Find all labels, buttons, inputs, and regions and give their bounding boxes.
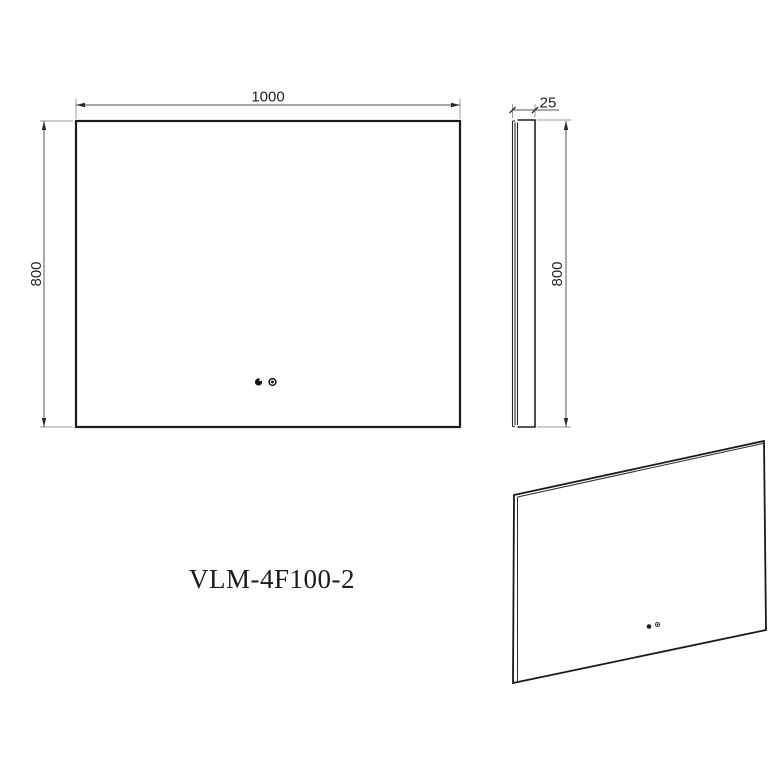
arrow-right-icon bbox=[451, 103, 460, 107]
technical-drawing-canvas: 1000 800 bbox=[0, 0, 780, 780]
mirror-front-outline bbox=[76, 121, 460, 427]
front-view: 1000 800 bbox=[28, 89, 460, 428]
power-sensor-highlight bbox=[259, 379, 261, 381]
power-sensor-icon bbox=[647, 624, 652, 629]
side-height-dim-label: 800 bbox=[549, 261, 566, 286]
mirror-perspective-outline bbox=[513, 441, 766, 683]
dimmer-sensor-dot bbox=[271, 381, 274, 384]
front-width-dim-label: 1000 bbox=[251, 89, 284, 106]
body-outline bbox=[518, 120, 536, 427]
front-height-dim-label: 800 bbox=[28, 261, 45, 286]
model-number-label: VLM-4F100-2 bbox=[189, 564, 355, 594]
perspective-view bbox=[513, 441, 766, 683]
arrow-down-icon bbox=[564, 418, 568, 427]
arrow-up-icon bbox=[564, 121, 568, 130]
dim-side-height: 800 bbox=[537, 120, 571, 427]
arrow-down-icon bbox=[42, 418, 46, 427]
dim-thickness: 25 bbox=[510, 95, 560, 119]
dim-width: 1000 bbox=[76, 89, 460, 120]
technical-drawing-page: 1000 800 bbox=[0, 0, 780, 780]
arrow-up-icon bbox=[42, 121, 46, 130]
arrow-left-icon bbox=[76, 103, 85, 107]
side-thickness-dim-label: 25 bbox=[540, 95, 557, 112]
dim-height: 800 bbox=[28, 121, 73, 427]
side-view: 25 800 bbox=[510, 95, 572, 428]
dimmer-sensor-dot bbox=[657, 624, 659, 626]
